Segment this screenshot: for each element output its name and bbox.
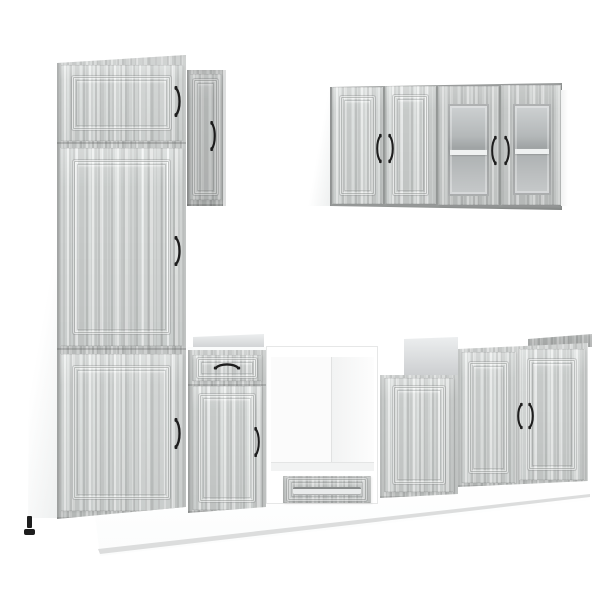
- door-panel: [394, 96, 427, 194]
- frosted-glass-pane: [448, 104, 489, 196]
- drawer-handle-icon: [213, 362, 241, 371]
- door-handle-icon: [527, 402, 535, 430]
- cabinet-body: [458, 343, 588, 487]
- cabinet-body: [380, 375, 458, 498]
- cabinet-door-left: [461, 352, 516, 483]
- wall-cabinet-front: [330, 83, 562, 210]
- glass-shelf-line: [450, 150, 487, 155]
- door-panel: [74, 367, 169, 498]
- double-door-base-cabinet: [458, 334, 592, 487]
- door-handle-icon: [173, 417, 182, 450]
- door-handle-icon: [173, 85, 182, 118]
- door-gap: [57, 142, 186, 144]
- drawer-base-cabinet: [188, 334, 266, 513]
- frosted-glass-pane: [513, 104, 551, 195]
- door-panel: [74, 161, 169, 333]
- door-panel: [394, 387, 444, 483]
- upper-wall-cabinet: [302, 83, 568, 210]
- cabinet-top-edge: [188, 347, 266, 350]
- door-panel: [529, 360, 575, 469]
- pantry-side-panel: [28, 60, 57, 518]
- door-panel: [341, 97, 374, 194]
- recessed-slot-handle: [293, 487, 361, 495]
- compartment-floor: [271, 462, 374, 471]
- door-handle-icon: [516, 402, 524, 430]
- pantry-front: [57, 55, 186, 519]
- door-panel: [470, 363, 507, 472]
- door-handle-icon: [209, 120, 217, 152]
- compartment-back-wall: [271, 357, 332, 462]
- product-photo: [0, 0, 600, 600]
- door-handle-icon: [503, 135, 511, 166]
- door-handle-icon: [387, 133, 395, 164]
- oven-compartment-opening: [271, 357, 374, 470]
- door-panel: [73, 77, 170, 129]
- cabinet-side-strip: [223, 70, 226, 206]
- compartment-side-wall: [332, 357, 374, 462]
- door-handle-icon: [490, 135, 498, 166]
- single-door-base-cabinet: [378, 337, 458, 498]
- narrow-wall-cabinet: [187, 70, 226, 206]
- oven-bottom-drawer: [283, 476, 371, 503]
- cabinet-door: [192, 386, 262, 510]
- oven-housing-cabinet: [266, 346, 378, 504]
- pantry-middle-door: [60, 148, 183, 346]
- glass-shelf-line: [515, 149, 549, 154]
- pantry-bottom-door: [60, 354, 183, 511]
- door-handle-icon: [375, 133, 383, 164]
- pantry-top-door: [60, 65, 183, 141]
- door-panel: [200, 395, 254, 501]
- cabinet-door: [384, 378, 454, 492]
- door-gap: [57, 348, 186, 350]
- wall-cabinet-door: [189, 74, 222, 200]
- open-top-back-panel: [404, 337, 458, 376]
- cabinet-foot: [24, 516, 36, 535]
- wall-cabinet-side-panel: [302, 86, 330, 206]
- tall-pantry-cabinet: [24, 54, 186, 536]
- cabinet-body: [188, 347, 266, 513]
- door-handle-icon: [253, 426, 261, 458]
- wall-cabinet-end-strip: [561, 90, 568, 206]
- door-handle-icon: [173, 235, 182, 267]
